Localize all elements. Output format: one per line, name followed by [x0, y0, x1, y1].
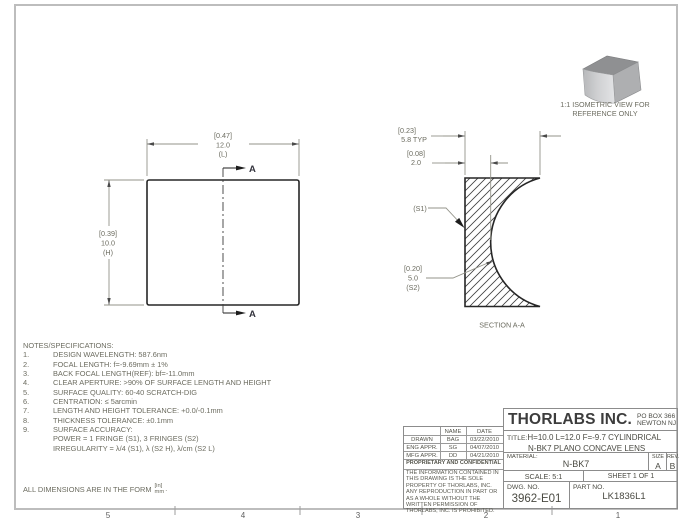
note-text: POWER = 1 FRINGE (S1), 3 FRINGES (S2) — [53, 434, 199, 443]
material-cell: MATERIAL: N-BK7 SIZE A REV. B — [503, 452, 678, 471]
form-period: . — [165, 486, 167, 493]
zone-number-4: 4 — [237, 511, 249, 520]
note-number: 5. — [23, 388, 53, 397]
dimensions-form-label: ALL DIMENSIONS ARE IN THE FORM — [23, 485, 152, 494]
rev-value: B — [667, 461, 678, 471]
drawing-sheet: A A [0.47] 12.0 (L) — [0, 0, 692, 528]
zone-number-2: 2 — [480, 511, 492, 520]
rev-label: REV. — [667, 454, 678, 460]
zone-number-1: 1 — [612, 511, 624, 520]
section-letter-top: A — [249, 164, 256, 175]
size-label: SIZE — [649, 454, 667, 460]
center-dim-inches: [0.08] — [407, 149, 425, 158]
edge-thickness-dimension: [0.23] 5.8 TYP — [398, 126, 561, 144]
note-item: 3.BACK FOCAL LENGTH(REF): bf=-11.0mm — [23, 369, 271, 378]
dwg-number-label: DWG. NO. — [507, 484, 539, 491]
note-text: BACK FOCAL LENGTH(REF): bf=-11.0mm — [53, 369, 194, 378]
approval-date: 04/21/2010 — [466, 453, 503, 459]
address-line2: NEWTON NJ — [637, 420, 676, 427]
height-dim-axis: (H) — [103, 248, 113, 257]
section-caption: SECTION A-A — [479, 321, 525, 330]
note-text: FOCAL LENGTH: f=-9.69mm ± 1% — [53, 360, 168, 369]
approval-name: BAG — [440, 437, 466, 443]
section-view: [0.23] 5.8 TYP [0.08] 2.0 (S1) — [398, 126, 561, 330]
isometric-caption-line1: 1:1 ISOMETRIC VIEW FOR — [560, 100, 649, 109]
title-label: TITLE: — [507, 435, 527, 442]
material-value: N-BK7 — [504, 459, 648, 469]
approval-date: 04/07/2010 — [466, 445, 503, 451]
note-item: IRREGULARITY = λ/4 (S1), λ (S2 H), λ/cm … — [23, 444, 271, 453]
rev-cell: REV. B — [666, 453, 678, 470]
zone-number-3: 3 — [352, 511, 364, 520]
s1-label: (S1) — [413, 204, 427, 213]
arrowhead-icon — [236, 311, 246, 316]
approvals-table: NAME DATE DRAWN BAG 03/22/2010 ENG APPR.… — [403, 426, 504, 509]
note-item: 1.DESIGN WAVELENGTH: 587.6nm — [23, 350, 271, 359]
note-item: 7.LENGTH AND HEIGHT TOLERANCE: +0.0/-0.1… — [23, 406, 271, 415]
note-item: 8.THICKNESS TOLERANCE: ±0.1mm — [23, 416, 271, 425]
approval-date: 03/22/2010 — [466, 437, 503, 443]
length-dim-mm: 12.0 — [216, 141, 230, 150]
arrowhead-icon — [236, 166, 246, 171]
lens-section-outline — [465, 178, 540, 307]
proprietary-header: PROPRIETARY AND CONFIDENTIAL — [404, 460, 503, 466]
note-item: 5.SURFACE QUALITY: 60-40 SCRATCH-DIG — [23, 388, 271, 397]
approval-name: SG — [440, 445, 466, 451]
col-header-name: NAME — [440, 429, 466, 435]
note-number: 6. — [23, 397, 53, 406]
note-number: 9. — [23, 425, 53, 434]
note-item: 9.SURFACE ACCURACY: — [23, 425, 271, 434]
part-cell: PART NO. LK1836L1 — [569, 482, 678, 508]
note-number: 8. — [23, 416, 53, 425]
length-dim-axis: (L) — [219, 150, 228, 159]
height-dim-mm: 10.0 — [101, 239, 115, 248]
proprietary-text: THE INFORMATION CONTAINED IN THIS DRAWIN… — [406, 470, 501, 515]
edge-dim-mm: 5.8 TYP — [401, 135, 427, 144]
center-dim-mm: 2.0 — [411, 158, 421, 167]
note-text: CENTRATION: ≤ 5arcmin — [53, 397, 137, 406]
zone-number-5: 5 — [102, 511, 114, 520]
note-item: 4.CLEAR APERTURE: >90% OF SURFACE LENGTH… — [23, 378, 271, 387]
note-number: 4. — [23, 378, 53, 387]
dimensions-form-fraction: [in] mm — [155, 483, 165, 495]
approval-role: MFG APPR. — [404, 453, 440, 459]
note-number: 2. — [23, 360, 53, 369]
isometric-caption-line2: REFERENCE ONLY — [572, 109, 638, 118]
note-number: 7. — [23, 406, 53, 415]
col-header-date: DATE — [466, 429, 503, 435]
radius-dim-mm: 5.0 — [408, 274, 418, 283]
note-number — [23, 444, 53, 453]
front-view: A A [0.47] 12.0 (L) — [99, 131, 299, 320]
address-line1: PO BOX 366 — [637, 413, 676, 420]
note-text: LENGTH AND HEIGHT TOLERANCE: +0.0/-0.1mm — [53, 406, 223, 415]
center-thickness-dimension: [0.08] 2.0 — [407, 149, 508, 167]
section-arrow-bottom: A — [223, 309, 256, 320]
company-address: PO BOX 366 NEWTON NJ — [637, 412, 676, 427]
part-number-label: PART NO. — [573, 484, 604, 491]
s1-leader: (S1) — [413, 204, 464, 228]
approval-role: DRAWN — [404, 437, 440, 443]
part-number-value: LK1836L1 — [570, 491, 678, 502]
size-cell: SIZE A — [648, 453, 667, 470]
note-number — [23, 434, 53, 443]
isometric-view: 1:1 ISOMETRIC VIEW FOR REFERENCE ONLY — [560, 56, 649, 118]
note-item: POWER = 1 FRINGE (S1), 3 FRINGES (S2) — [23, 434, 271, 443]
dwg-row: DWG. NO. 3962-E01 PART NO. LK1836L1 — [503, 481, 678, 509]
height-dim-inches: [0.39] — [99, 229, 117, 238]
note-text: SURFACE QUALITY: 60-40 SCRATCH-DIG — [53, 388, 197, 397]
note-number: 1. — [23, 350, 53, 359]
note-text: SURFACE ACCURACY: — [53, 425, 133, 434]
radius-dim-inches: [0.20] — [404, 264, 422, 273]
section-arrow-top: A — [223, 164, 256, 175]
note-text: IRREGULARITY = λ/4 (S1), λ (S2 H), λ/cm … — [53, 444, 215, 453]
length-dim-inches: [0.47] — [214, 131, 232, 140]
note-text: DESIGN WAVELENGTH: 587.6nm — [53, 350, 167, 359]
title-cell: TITLE:H=10.0 L=12.0 F=-9.7 CYLINDRICAL N… — [503, 430, 678, 453]
company-name: THORLABS INC. — [508, 411, 632, 429]
note-number: 3. — [23, 369, 53, 378]
note-text: THICKNESS TOLERANCE: ±0.1mm — [53, 416, 173, 425]
notes-specifications: NOTES/SPECIFICATIONS: 1.DESIGN WAVELENGT… — [23, 341, 271, 453]
size-value: A — [649, 461, 667, 471]
sheet-value: SHEET 1 OF 1 — [583, 471, 678, 481]
approval-name: DD — [440, 453, 466, 459]
company-cell: THORLABS INC. PO BOX 366 NEWTON NJ — [503, 408, 678, 431]
section-letter-bottom: A — [249, 309, 256, 320]
note-text: CLEAR APERTURE: >90% OF SURFACE LENGTH A… — [53, 378, 271, 387]
edge-dim-inches: [0.23] — [398, 126, 416, 135]
dimensions-form-note: ALL DIMENSIONS ARE IN THE FORM [in] mm . — [23, 481, 167, 497]
height-dimension: [0.39] 10.0 (H) — [99, 180, 144, 305]
form-denominator: mm — [155, 489, 165, 495]
radius-dim-surface: (S2) — [406, 283, 420, 292]
dwg-cell: DWG. NO. 3962-E01 — [504, 482, 569, 508]
approval-role: ENG APPR. — [404, 445, 440, 451]
dwg-number-value: 3962-E01 — [504, 493, 569, 505]
note-item: 6.CENTRATION: ≤ 5arcmin — [23, 397, 271, 406]
notes-header: NOTES/SPECIFICATIONS: — [23, 341, 271, 350]
drawing-title-line1: H=10.0 L=12.0 F=-9.7 CYLINDRICAL — [527, 433, 661, 442]
note-item: 2.FOCAL LENGTH: f=-9.69mm ± 1% — [23, 360, 271, 369]
scale-value: SCALE: 5:1 — [504, 471, 583, 481]
title-block: THORLABS INC. PO BOX 366 NEWTON NJ TITLE… — [503, 408, 678, 509]
